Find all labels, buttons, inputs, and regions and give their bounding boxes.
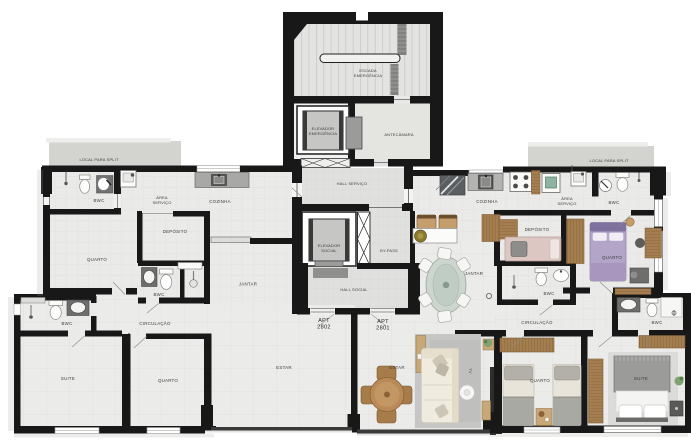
- svg-text:COZINHA: COZINHA: [209, 199, 231, 204]
- svg-text:SUITE: SUITE: [61, 376, 75, 381]
- svg-text:EMERGÊNCIA: EMERGÊNCIA: [309, 131, 338, 136]
- svg-text:BWC: BWC: [94, 198, 105, 203]
- svg-text:BY-PASS: BY-PASS: [380, 248, 398, 253]
- svg-text:ANTECÂMARA: ANTECÂMARA: [384, 132, 413, 137]
- svg-text:QUARTO: QUARTO: [602, 255, 622, 260]
- svg-text:COZINHA: COZINHA: [476, 199, 498, 204]
- svg-text:LOCAL PARA SPLIT: LOCAL PARA SPLIT: [79, 157, 118, 162]
- svg-text:BWC: BWC: [62, 321, 73, 326]
- svg-text:HALL SOCIAL: HALL SOCIAL: [340, 287, 368, 292]
- svg-text:TV: TV: [468, 368, 473, 374]
- svg-text:SUITE: SUITE: [634, 376, 648, 381]
- svg-text:BWC: BWC: [609, 200, 620, 205]
- svg-text:LOCAL PARA SPLIT: LOCAL PARA SPLIT: [589, 158, 628, 163]
- svg-text:ESTAR: ESTAR: [276, 365, 292, 370]
- svg-text:BWC: BWC: [544, 291, 555, 296]
- svg-text:BWC: BWC: [652, 320, 663, 325]
- svg-text:JANTAR: JANTAR: [465, 271, 483, 276]
- svg-text:2801: 2801: [376, 326, 390, 332]
- svg-text:JANTAR: JANTAR: [239, 282, 257, 287]
- svg-text:QUARTO: QUARTO: [530, 378, 550, 383]
- svg-text:HALL SERVIÇO: HALL SERVIÇO: [337, 181, 368, 186]
- svg-text:SERVIÇO: SERVIÇO: [153, 200, 172, 205]
- svg-text:DEPÓSITO: DEPÓSITO: [163, 229, 188, 234]
- svg-text:EMERGÊNCIA: EMERGÊNCIA: [354, 73, 383, 78]
- svg-text:ESTAR: ESTAR: [389, 365, 405, 370]
- svg-text:SERVIÇO: SERVIÇO: [558, 201, 577, 206]
- svg-text:SOCIAL: SOCIAL: [321, 248, 337, 253]
- svg-text:QUARTO: QUARTO: [158, 378, 178, 383]
- svg-text:BWC: BWC: [154, 292, 165, 297]
- svg-text:APT: APT: [377, 319, 389, 325]
- svg-text:QUARTO: QUARTO: [87, 257, 107, 262]
- svg-text:CIRCULAÇÃO: CIRCULAÇÃO: [521, 320, 553, 325]
- svg-text:CIRCULAÇÃO: CIRCULAÇÃO: [139, 321, 171, 326]
- svg-text:DEPÓSITO: DEPÓSITO: [525, 227, 550, 232]
- svg-text:2802: 2802: [317, 325, 331, 331]
- svg-text:APT: APT: [318, 318, 330, 324]
